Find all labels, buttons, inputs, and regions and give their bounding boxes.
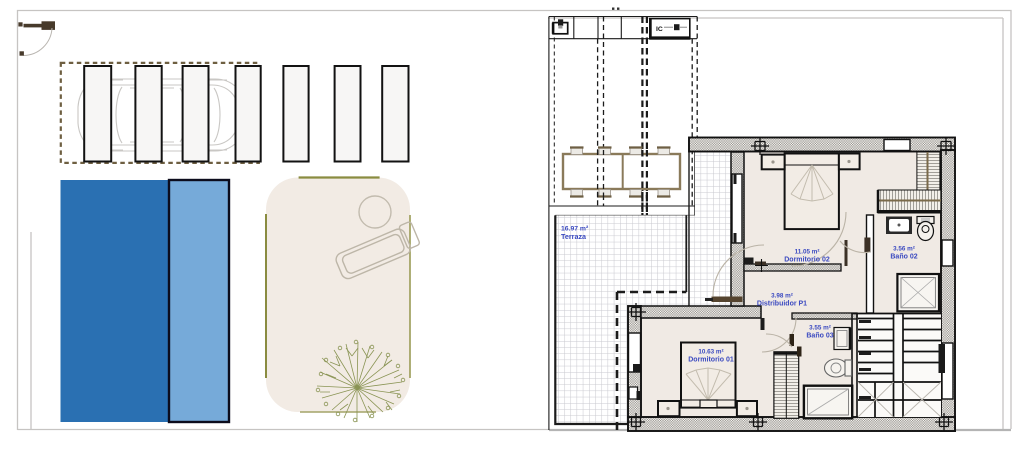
svg-text:3.98 m²: 3.98 m² bbox=[771, 293, 793, 300]
svg-text:Distribuidor P1: Distribuidor P1 bbox=[757, 301, 807, 308]
svg-text:Baño 02: Baño 02 bbox=[890, 254, 917, 261]
svg-text:10.63 m²: 10.63 m² bbox=[698, 349, 723, 356]
svg-text:Terraza: Terraza bbox=[561, 232, 587, 241]
svg-text:11.05 m²: 11.05 m² bbox=[795, 249, 820, 256]
svg-text:Baño 03: Baño 03 bbox=[806, 333, 833, 340]
svg-text:IC: IC bbox=[656, 26, 663, 33]
svg-text:Dormitorio 01: Dormitorio 01 bbox=[688, 357, 734, 364]
svg-text:Dormitorio 02: Dormitorio 02 bbox=[784, 257, 830, 264]
svg-text:3.56 m²: 3.56 m² bbox=[893, 246, 915, 253]
svg-text:3.55 m²: 3.55 m² bbox=[809, 325, 831, 332]
